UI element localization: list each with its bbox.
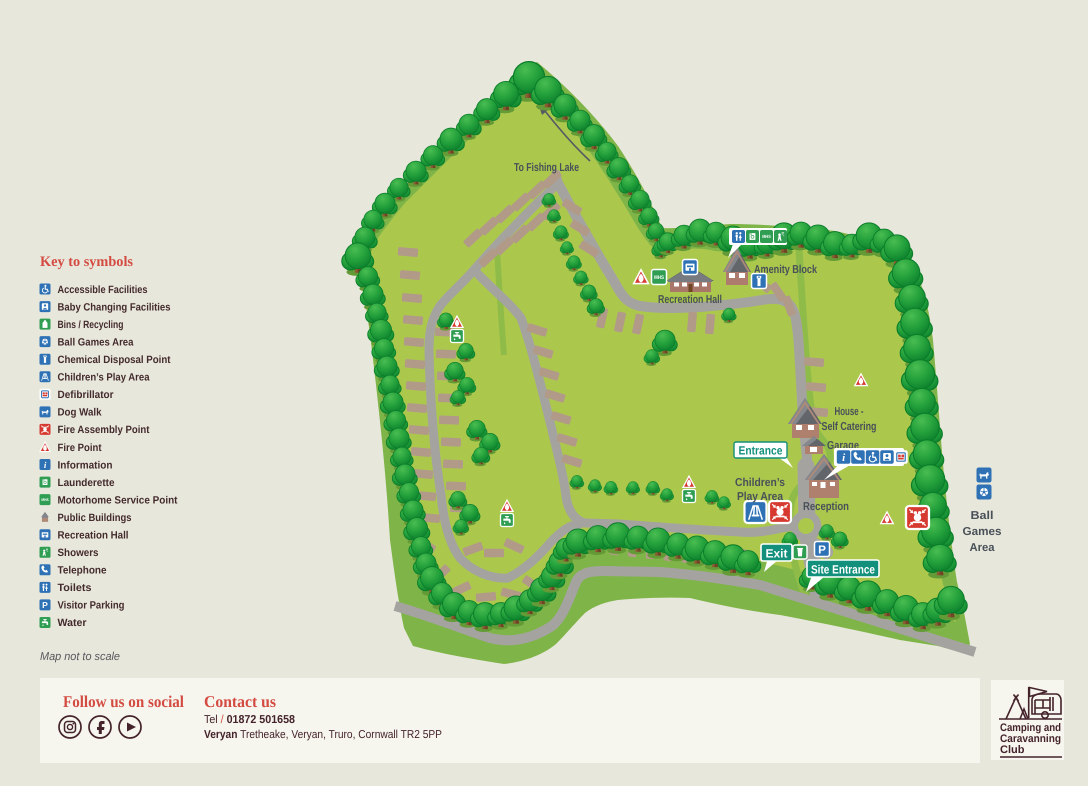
svg-text:i: i <box>842 451 845 464</box>
svg-text:Fire Assembly Point: Fire Assembly Point <box>58 424 150 436</box>
svg-text:Map not to scale: Map not to scale <box>40 651 120 663</box>
svg-text:MHS: MHS <box>654 275 664 281</box>
svg-text:P: P <box>818 543 826 556</box>
svg-text:Children’s Play Area: Children’s Play Area <box>58 372 150 384</box>
svg-text:Contact us: Contact us <box>204 692 277 711</box>
svg-text:Showers: Showers <box>58 547 99 559</box>
svg-text:House -: House - <box>835 406 864 418</box>
svg-text:Children’s: Children’s <box>735 477 785 489</box>
svg-text:i: i <box>44 460 47 470</box>
svg-text:Entrance: Entrance <box>739 444 783 458</box>
svg-text:Accessible Facilities: Accessible Facilities <box>58 284 148 296</box>
svg-text:Visitor Parking: Visitor Parking <box>58 600 125 612</box>
svg-text:MHS: MHS <box>41 498 48 502</box>
svg-text:Club: Club <box>1000 744 1025 756</box>
svg-text:Key to symbols: Key to symbols <box>40 254 133 270</box>
svg-text:Bins / Recycling: Bins / Recycling <box>58 319 124 331</box>
svg-text:Site Entrance: Site Entrance <box>811 563 875 577</box>
svg-text:Games: Games <box>963 526 1002 538</box>
svg-text:Information: Information <box>58 459 113 471</box>
svg-text:Self Catering: Self Catering <box>822 421 877 433</box>
svg-text:Play Area: Play Area <box>737 491 784 503</box>
svg-text:Toilets: Toilets <box>58 582 92 594</box>
svg-text:Motorhome Service Point: Motorhome Service Point <box>58 494 178 506</box>
svg-text:Dog Walk: Dog Walk <box>58 407 102 419</box>
svg-text:To Fishing Lake: To Fishing Lake <box>514 162 579 174</box>
svg-text:Area: Area <box>970 542 996 554</box>
svg-text:P: P <box>42 600 48 610</box>
svg-text:Ball: Ball <box>971 510 994 522</box>
svg-text:Recreation Hall: Recreation Hall <box>658 294 722 306</box>
svg-text:Water: Water <box>58 617 87 629</box>
svg-text:Tel / 01872 501658: Tel / 01872 501658 <box>204 714 296 726</box>
svg-text:Veryan Tretheake, Veryan, Trur: Veryan Tretheake, Veryan, Truro, Cornwal… <box>204 729 442 741</box>
svg-text:Chemical Disposal Point: Chemical Disposal Point <box>58 354 171 366</box>
svg-text:Public Buildings: Public Buildings <box>58 512 132 524</box>
svg-text:MHS: MHS <box>762 235 771 240</box>
svg-text:Ball Games Area: Ball Games Area <box>58 336 134 348</box>
svg-text:Exit: Exit <box>765 547 787 561</box>
svg-text:Follow us on social: Follow us on social <box>63 692 184 711</box>
svg-text:Fire Point: Fire Point <box>58 442 102 454</box>
svg-text:Baby Changing Facilities: Baby Changing Facilities <box>58 301 171 313</box>
svg-text:Launderette: Launderette <box>58 477 115 489</box>
svg-text:Telephone: Telephone <box>58 565 107 577</box>
svg-text:Recreation Hall: Recreation Hall <box>58 530 129 542</box>
svg-text:Defibrillator: Defibrillator <box>58 389 114 401</box>
svg-text:Reception: Reception <box>803 501 849 513</box>
